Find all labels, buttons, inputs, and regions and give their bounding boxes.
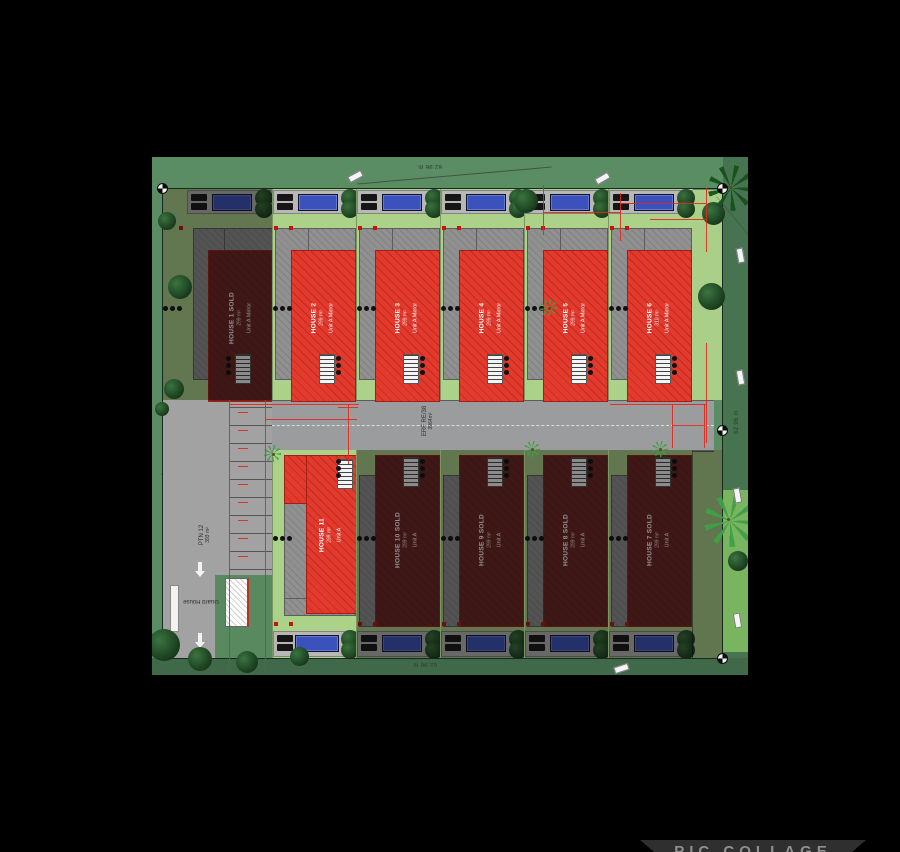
boundary-line-top (162, 188, 722, 189)
survey-beacon-icon (717, 653, 728, 664)
spotlight-dots (672, 356, 677, 375)
dimension-tag (347, 170, 364, 183)
column-marker (610, 226, 614, 230)
lot-house-2: HOUSE 2 299 m² Unit A Mirror (272, 188, 357, 400)
boundary-line-right (722, 188, 723, 658)
dimension-line (610, 404, 706, 405)
survey-beacon-icon (157, 183, 168, 194)
spotlight-dots (336, 356, 341, 375)
house-area: 299 m² (319, 262, 325, 374)
dimension-line (229, 400, 230, 672)
sold-shade (692, 450, 722, 658)
house-unit-type: Unit A Mirror (581, 262, 588, 374)
house-area: 310 m² (655, 262, 661, 374)
dimension-line (650, 219, 706, 220)
dimension-line (543, 185, 544, 235)
lot-house-5: HOUSE 5 299 m² Unit A Mirror (524, 188, 609, 400)
swimming-pool (466, 194, 506, 211)
palm-tree-icon (652, 441, 668, 457)
dimension-line (704, 404, 705, 448)
house-unit-type: Unit A Mirror (413, 262, 420, 374)
spotlight-dots (504, 356, 509, 375)
dimension-line (672, 404, 673, 448)
house-name: HOUSE 3 (394, 262, 402, 374)
survey-beacon-icon (717, 425, 728, 436)
dimension-line (348, 404, 349, 464)
house-unit-type: Unit A Mirror (665, 262, 672, 374)
column-marker (457, 226, 461, 230)
tree-icon (155, 402, 169, 416)
lot-house-11: HOUSE 11 299 m² Unit A (272, 450, 357, 659)
driveway-strip (441, 190, 525, 214)
palm-tree-icon (540, 299, 557, 316)
spotlight-dots (441, 306, 460, 311)
dimension-line (620, 193, 621, 241)
house-name: HOUSE 5 (562, 262, 570, 374)
house-label: HOUSE 5 299 m² Unit A Mirror (562, 262, 587, 374)
column-marker (289, 622, 293, 626)
lot-house-8: HOUSE 8 SOLD 299 m² Unit A (524, 450, 609, 659)
tree-icon (290, 647, 309, 666)
spotlight-dots (357, 306, 376, 311)
dimension-right: 62.96 m (734, 392, 740, 452)
column-marker (625, 226, 629, 230)
erf-road-label: ERF RE/38 3964m² (422, 391, 434, 451)
spotlight-dots (609, 306, 628, 311)
column-marker (289, 226, 293, 230)
dimension-line (706, 188, 707, 252)
tree-icon (728, 551, 748, 571)
car-icon (445, 203, 461, 210)
column-marker (442, 226, 446, 230)
watermark-text: PIC COLLAGE (640, 843, 866, 852)
tree-icon (158, 212, 176, 230)
house-unit-type: Unit A Mirror (497, 262, 504, 374)
swimming-pool (382, 194, 422, 211)
driveway-strip (273, 631, 357, 657)
dimension-line (265, 400, 266, 672)
house-label: HOUSE 4 299 m² Unit A Mirror (478, 262, 503, 374)
house-unit-type: Unit A Mirror (329, 262, 336, 374)
palm-tree-icon (704, 495, 748, 547)
car-icon (277, 194, 293, 201)
dimension-line (338, 407, 358, 408)
dimension-bottom: 62.96 m (395, 661, 455, 667)
dimension-line (706, 343, 707, 443)
tree-icon (514, 189, 538, 213)
house-label: HOUSE 6 310 m² Unit A Mirror (646, 262, 671, 374)
dimension-line (265, 419, 357, 420)
tree-icon (168, 275, 192, 299)
car-icon (361, 194, 377, 201)
house-label: HOUSE 2 299 m² Unit A Mirror (310, 262, 335, 374)
driveway-strip (273, 190, 357, 214)
car-icon (277, 203, 293, 210)
spotlight-dots (336, 459, 341, 478)
column-marker (373, 226, 377, 230)
survey-beacon-icon (717, 183, 728, 194)
car-icon (361, 203, 377, 210)
car-icon (613, 194, 629, 201)
sold-shade (357, 450, 441, 659)
tree-icon (188, 647, 212, 671)
column-marker (358, 226, 362, 230)
spotlight-dots (420, 356, 425, 375)
house-label: HOUSE 3 299 m² Unit A Mirror (394, 262, 419, 374)
spotlight-dots (588, 356, 593, 375)
sold-shade (525, 450, 609, 659)
car-icon (277, 635, 293, 642)
column-marker (526, 226, 530, 230)
house-label: HOUSE 11 299 m² Unit A (318, 479, 343, 591)
house-unit-type: Unit A (337, 479, 344, 591)
dimension-line (543, 212, 621, 213)
dimension-line (620, 203, 706, 204)
spotlight-dots (273, 306, 292, 311)
house-name: HOUSE 11 (318, 479, 326, 591)
pic-collage-watermark: PIC COLLAGE (640, 840, 866, 852)
road-arrow-icon (198, 633, 202, 642)
car-icon (613, 203, 629, 210)
sold-shade (441, 450, 525, 659)
palm-tree-icon (264, 445, 281, 462)
sold-shade (609, 450, 693, 659)
swimming-pool (298, 194, 338, 211)
site-plan: HOUSE 1 SOLD 299 m² Unit A Mirror HOUSE … (152, 157, 748, 675)
parking-bay-marks (238, 412, 248, 572)
screenshot-stage: HOUSE 1 SOLD 299 m² Unit A Mirror HOUSE … (0, 0, 900, 852)
lot-house-4: HOUSE 4 299 m² Unit A Mirror (440, 188, 525, 400)
dimension-line (672, 425, 704, 426)
lot-house-3: HOUSE 3 299 m² Unit A Mirror (356, 188, 441, 400)
house-area: 299 m² (327, 479, 333, 591)
tree-icon (164, 379, 184, 399)
house-area: 299 m² (571, 262, 577, 374)
lot-house-9: HOUSE 9 SOLD 299 m² Unit A (440, 450, 525, 659)
car-icon (277, 644, 293, 651)
driveway-strip (357, 190, 441, 214)
car-icon (445, 194, 461, 201)
parking-label: PTN 12 393 m² (199, 505, 211, 565)
house-name: HOUSE 6 (646, 262, 654, 374)
column-marker (274, 226, 278, 230)
house-area: 299 m² (403, 262, 409, 374)
gate-barrier (170, 585, 179, 632)
house-name: HOUSE 4 (478, 262, 486, 374)
dimension-line (229, 404, 359, 405)
house-name: HOUSE 2 (310, 262, 318, 374)
tree-icon (698, 283, 725, 310)
lot-house-7: HOUSE 7 SOLD 299 m² Unit A (608, 450, 693, 659)
boundary-line-left (162, 188, 163, 658)
swimming-pool (550, 194, 590, 211)
palm-tree-icon (524, 441, 540, 457)
dimension-top: 62.96 m (400, 163, 460, 169)
column-marker (274, 622, 278, 626)
lot-house-10: HOUSE 10 SOLD 299 m² Unit A (356, 450, 441, 659)
spotlight-dots (273, 536, 292, 541)
driveway-strip (609, 190, 693, 214)
house-area: 299 m² (487, 262, 493, 374)
tree-icon (236, 651, 258, 673)
